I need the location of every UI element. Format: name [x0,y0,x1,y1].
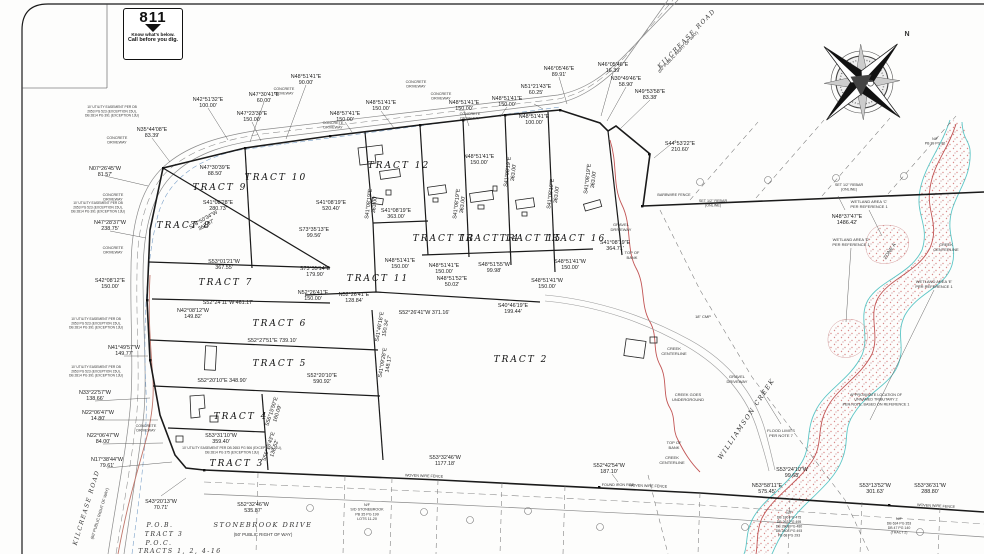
tract-label: TRACT 3 [210,459,265,469]
bearing-label: S52°20'10"E590.92' [307,373,338,385]
bearing-label: N52°26'41"E150.00' [298,290,329,302]
note-label: CONCRETEDRIVEWAY [406,80,427,89]
creek-west-branch [610,140,700,472]
bearing-label: S52°20'10"E 348.90' [197,378,246,384]
tract-label: TRACT 6 [253,319,308,329]
tract-label: TRACT 12 [368,161,430,171]
note-label: WETLAND AREA 'D'PER REFERENCE 1 [832,237,870,247]
compass-rose [786,6,938,158]
note-label: TOP OFBANK [667,440,682,450]
bearing-label: N48°51'41"E90.00' [291,74,322,86]
note-label: P.O.B. [145,522,173,529]
bearing-label: S73°35'14"E179.90' [300,266,331,278]
badge-811-number: 811 [124,10,182,26]
note-label: CONCRETEDRIVEWAY [460,112,481,121]
bearing-label: S44°53'22"E210.60' [665,141,696,153]
bearing-label: N47°30'39"E88.50' [200,165,231,177]
note-label: 10' UTILITY EASEMENT PER DB2653 PG 523 (… [69,365,123,378]
bearing-label: N48°51'41"E150.00' [429,263,460,275]
bearing-label: S41°08'19"E520.40' [316,200,347,212]
note-label: (60' PUBLIC RIGHT OF WAY) [657,30,700,74]
tract-label: TRACT 4 [214,412,269,422]
bearing-label: N35°44'08"E83.39' [137,127,168,139]
note-label: 10' UTILITY EASEMENT PER DB2653 PG 523 (… [69,317,123,330]
note-label: 10' UTILITY EASEMENT PER DB2653 PG 523 (… [71,201,125,214]
bearing-label: S40°46'19"E199.44' [498,303,529,315]
bearing-label: N46°05'46"E16.39' [598,62,629,74]
bearing-label: S48°51'55"W99.98' [478,262,511,274]
note-label: WETLAND AREA 'C'PER REFERENCE 1 [850,199,888,209]
bearing-label: S41°08'19"E363.00' [583,163,599,195]
note-label: WETLAND AREA 'E'PER REFERENCE 1 [915,279,953,289]
bearing-label: S41°09'28"E148.17' [377,347,394,379]
bearing-label: S78°50'34"W362.97' [188,209,222,236]
bearing-label: S52°27'51"E 739.10' [247,338,296,344]
badge-line2: Call before you dig. [124,38,182,44]
bearing-label: S41°08'28"E280.73' [203,200,234,212]
bearing-label: S52°42'54"W187.10' [593,463,626,475]
note-label: (50' PUBLIC RIGHT OF WAY) [234,532,293,537]
bearing-label: S52°26'41"W 371.16' [399,310,450,316]
note-label: P.O.C. [144,540,172,547]
bearing-label: S41°08'19"E363.00' [503,156,519,188]
note-label: SET 1/2" REBAR(ONLINE) [835,183,864,192]
note-label: TRACTS 1, 2, 4-16 [138,548,221,554]
note-label: 18" CMP [695,314,711,319]
note-label: WOVEN WIRE FENCE [629,483,668,488]
bearing-label: N42°51'32"E100.00' [193,97,224,109]
note-label: CREEKCENTERLINE [661,346,687,356]
bearing-label: N47°23'30"E150.00' [237,111,268,123]
plat-sheet: TRACT 9TRACT 10TRACT 8TRACT 7TRACT 12TRA… [0,0,984,554]
note-label: GRAVELDRIVEWAY [611,222,632,232]
bearing-label: S56°15'50"E160.09' [265,396,286,429]
note-label: FOUND IRON ROD [602,483,635,487]
note-label: N [904,31,909,38]
bearing-label: S48°51'41"W150.00' [554,259,587,271]
tract-label: TRACT 5 [253,359,308,369]
note-label: CONCRETEDRIVEWAY [107,136,128,145]
note-label: BARBWIRE FENCE [657,193,691,197]
bearing-label: S52°24'11"W 461.17' [203,300,253,306]
title-inset-box [22,4,107,88]
tract-label: TRACT 11 [347,274,409,284]
note-label: N/FS/D STONEBROOKPB 35 PG 199LOTS 11-20 [350,503,384,521]
note-label: CREEKCENTERLINE [659,455,685,465]
bearing-label: S53°36'31"W288.80' [914,483,947,495]
bearing-label: S42°08'12"E150.00' [95,278,126,290]
bearing-label: S53°31'10"W359.40' [205,433,238,445]
note-label: TOP OFBANK [625,250,640,260]
note-label: WILLIAMSON CREEK [716,377,776,461]
bearing-label: N46°05'46"E89.91' [544,66,575,78]
bearing-label: N49°53'58"E83.38' [635,89,666,101]
bearing-label: N48°51'41"E100.00' [519,114,550,126]
note-label: FLOOD LIMITSPER NOTE 7 [767,428,795,438]
note-label: N/FDB 180 PG 475DB 263 PG 495DB 2808 PG … [776,511,803,538]
note-label: STONEBROOK DRIVE [214,521,313,529]
tract-label: TRACT 7 [199,278,254,288]
note-label: CONCRETEDRIVEWAY [136,424,157,433]
bearing-label: N22°06'47"W84.00' [87,433,120,445]
tract-label: TRACT 10 [245,173,307,183]
bearing-label: S53°13'52"W301.63' [859,483,892,495]
bearing-label: N48°51'41"E150.00' [385,258,416,270]
bearing-label: S52°32'46"W535.87' [237,502,270,514]
note-label: WOVEN WIRE FENCE [405,473,444,478]
bearing-label: N48°51'52"E50.02' [437,276,468,288]
note-label: KILCREASE ROAD [71,469,101,547]
note-label: CONCRETEDRIVEWAY [103,246,124,255]
bearing-label: N48°37'47"E1486.42' [832,214,863,226]
tract-label: TRACT 16 [544,234,606,244]
bearing-label: S73°35'13"E99.56' [299,227,330,239]
note-label: CREEK GOESUNDERGROUND [672,392,704,402]
note-label: CONCRETEDRIVEWAY [323,121,344,130]
call-811-badge: 811 Know what's below. Call before you d… [123,8,183,60]
tract-label: TRACT 9 [193,183,248,193]
bearing-label: S41°08'19"E363.00' [381,208,412,220]
bearing-label: N52°26'41"E128.84' [339,292,370,304]
bearing-label: S41°08'19"E363.00' [546,178,562,210]
bearing-label: S41°46'16"E150.34' [374,311,391,343]
bearing-label: S53°32'46"W1177.18' [429,455,462,467]
bearing-label: N48°51'41"E150.00' [449,100,480,112]
tract-label: TRACT 2 [494,355,549,365]
note-label: CONCRETEDRIVEWAY [274,87,295,96]
bearing-label: N48°51'41"E150.00' [366,100,397,112]
bearing-label: S41°08'19"E363.00' [452,188,468,220]
bearing-label: N07°26'45"W81.57' [89,166,122,178]
bearing-label: N48°51'41"E150.00' [464,154,495,166]
note-label: CONCRETEDRIVEWAY [431,92,452,101]
bearing-label: N51°21'43"E60.25' [521,84,552,96]
bearing-label: N41°49'57"W149.77' [108,345,141,357]
bearing-label: S43°20'13"W70.71' [145,499,178,511]
bearing-label: N47°28'37"W238.75' [94,220,127,232]
bearing-label: N17°38'44"W79.61' [91,457,124,469]
wetland-blob-d [828,319,868,357]
note-label: TRACT 3 [145,531,184,538]
bearing-label: N30°49'46"E58.90' [611,76,642,88]
plat-drawing: TRACT 9TRACT 10TRACT 8TRACT 7TRACT 12TRA… [0,0,984,554]
bearing-label: S48°51'41"W150.00' [531,278,564,290]
note-label: 10' UTILITY EASEMENT PER DB2653 PG 523 (… [85,105,139,118]
bearing-label: N42°08'12"W149.82' [177,308,210,320]
note-label: GRAVELDRIVEWAY [727,374,748,384]
